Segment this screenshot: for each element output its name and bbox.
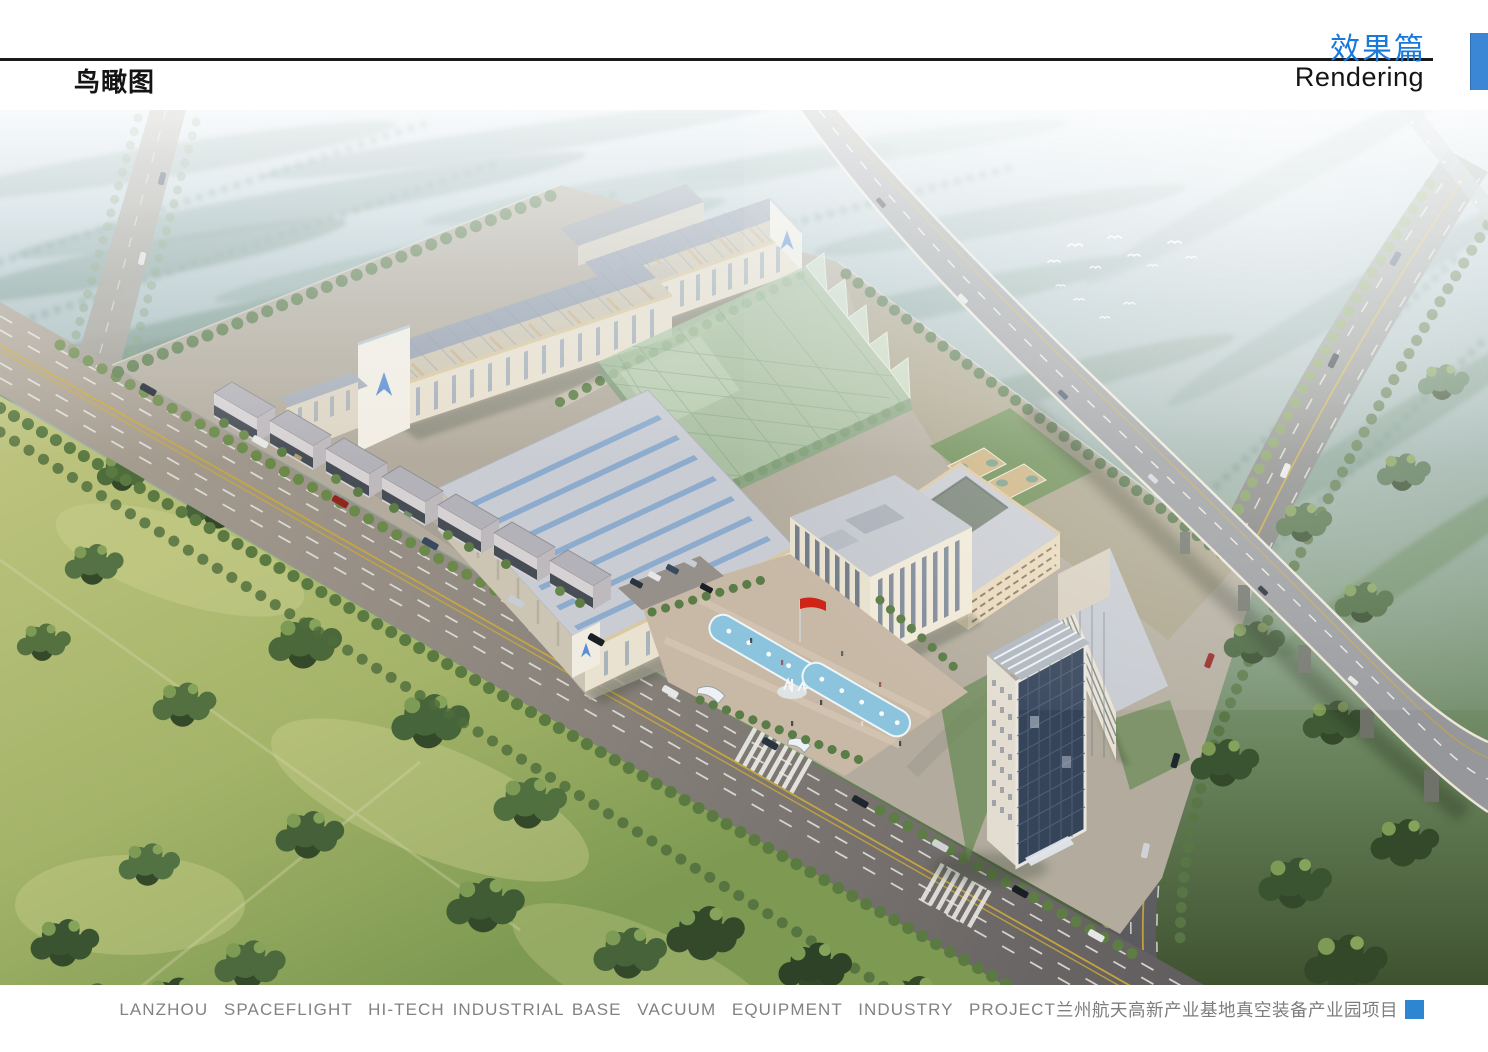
footer-caption-en: LANZHOU SPACEFLIGHT HI-TECH INDUSTRIAL B… <box>119 1000 1056 1020</box>
page-title: 鸟瞰图 <box>74 62 155 99</box>
aerial-rendering <box>0 110 1488 985</box>
footer-marker <box>1405 1000 1424 1019</box>
section-title-en: Rendering <box>1295 62 1424 93</box>
page-footer: LANZHOU SPACEFLIGHT HI-TECH INDUSTRIAL B… <box>119 997 1424 1022</box>
header-rule <box>0 58 1433 61</box>
header-accent-tab <box>1470 33 1488 90</box>
presentation-page: 鸟瞰图 效果篇 Rendering <box>0 0 1488 1052</box>
footer-caption-cn: 兰州航天高新产业基地真空装备产业园项目 <box>1056 997 1398 1022</box>
